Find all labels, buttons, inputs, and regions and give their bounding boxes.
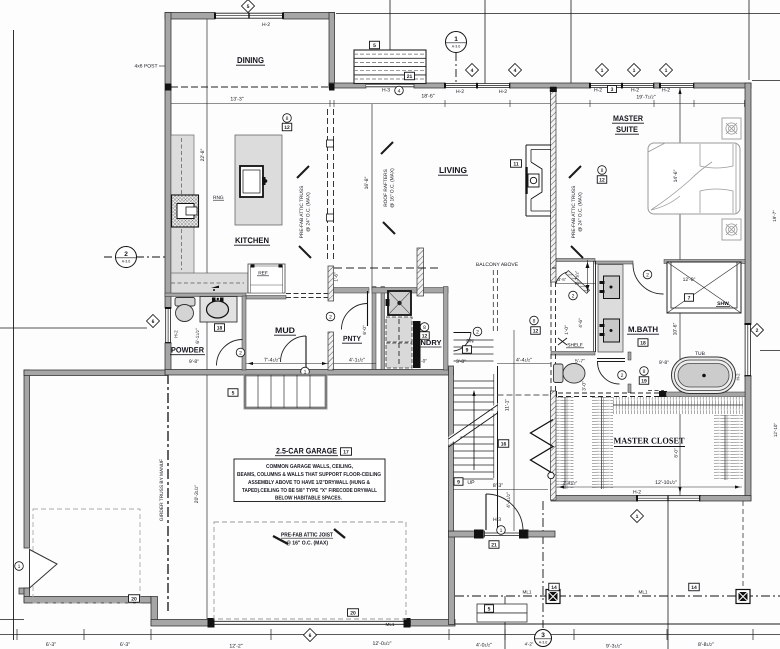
svg-text:22'-8": 22'-8" [200, 148, 206, 161]
svg-text:ML1: ML1 [386, 622, 395, 627]
svg-text:H-2: H-2 [174, 330, 179, 338]
svg-text:8: 8 [533, 318, 536, 324]
svg-text:H-3: H-3 [493, 517, 501, 523]
svg-text:4: 4 [514, 68, 517, 74]
svg-text:BELOW HABITABLE SPACES.: BELOW HABITABLE SPACES. [275, 496, 342, 502]
svg-text:8'-3": 8'-3" [493, 483, 503, 489]
svg-text:17: 17 [343, 449, 349, 455]
svg-text:4x6 POST: 4x6 POST [134, 64, 157, 70]
svg-text:20: 20 [131, 596, 137, 602]
svg-text:2: 2 [572, 293, 575, 299]
svg-text:6: 6 [152, 319, 155, 325]
svg-text:LIVING: LIVING [439, 165, 467, 175]
svg-text:4'-6": 4'-6" [578, 318, 584, 328]
svg-text:1: 1 [500, 528, 503, 534]
svg-text:8: 8 [643, 369, 646, 375]
svg-text:3: 3 [541, 632, 545, 639]
svg-text:2'-41/2": 2'-41/2" [563, 481, 578, 486]
svg-text:9: 9 [457, 479, 460, 485]
svg-text:2: 2 [646, 272, 649, 278]
svg-text:2: 2 [329, 314, 332, 320]
svg-text:2: 2 [239, 350, 242, 356]
svg-text:9'-8": 9'-8" [189, 359, 199, 365]
svg-text:4'-11/2": 4'-11/2" [349, 358, 365, 364]
svg-text:5: 5 [488, 606, 491, 612]
svg-text:A-3.0: A-3.0 [539, 641, 548, 645]
svg-text:8'-81/2": 8'-81/2" [698, 642, 714, 648]
svg-text:ML1: ML1 [639, 590, 648, 595]
svg-text:@ 24" O.C. (MAX): @ 24" O.C. (MAX) [306, 192, 312, 232]
svg-text:8: 8 [286, 116, 289, 122]
svg-text:20: 20 [350, 610, 356, 616]
svg-text:1'-0": 1'-0" [564, 325, 570, 335]
svg-text:5: 5 [373, 43, 376, 49]
svg-text:12: 12 [599, 177, 605, 183]
svg-text:ASSEMBLY ABOVE TO HAVE 1/2"DRY: ASSEMBLY ABOVE TO HAVE 1/2"DRYWALL (HUNG… [248, 479, 370, 486]
svg-text:H-3: H-3 [382, 88, 390, 94]
svg-text:19: 19 [641, 378, 647, 384]
svg-text:PRE-FAB ATTIC TRUSS: PRE-FAB ATTIC TRUSS [299, 186, 305, 239]
svg-text:H-2: H-2 [631, 88, 639, 94]
svg-text:5: 5 [247, 4, 250, 10]
svg-text:GIRDER TRUSS BY MANUF: GIRDER TRUSS BY MANUF [159, 459, 165, 521]
svg-text:1: 1 [454, 36, 458, 43]
svg-text:8'-0": 8'-0" [674, 448, 679, 458]
svg-text:KITCHEN: KITCHEN [235, 236, 269, 245]
svg-text:9'-31/2": 9'-31/2" [606, 644, 622, 649]
svg-text:3'-0": 3'-0" [582, 381, 588, 391]
svg-text:11'-1": 11'-1" [505, 399, 511, 412]
svg-text:2: 2 [124, 251, 128, 258]
svg-text:18'-6": 18'-6" [421, 94, 434, 100]
svg-text:14'-6": 14'-6" [673, 169, 679, 182]
svg-text:10'-6": 10'-6" [673, 322, 679, 335]
svg-text:12'-10": 12'-10" [773, 423, 778, 438]
svg-text:12: 12 [284, 125, 290, 131]
svg-text:20'-31/2": 20'-31/2" [194, 485, 200, 504]
svg-text:H-2: H-2 [633, 490, 641, 496]
svg-text:7'-41/2": 7'-41/2" [264, 358, 280, 364]
svg-text:4'-41/2": 4'-41/2" [516, 358, 532, 364]
svg-text:19'-71/2": 19'-71/2" [636, 95, 655, 101]
svg-text:8: 8 [601, 168, 604, 174]
svg-text:4: 4 [398, 88, 401, 94]
svg-text:11: 11 [513, 161, 519, 167]
svg-text:H-2: H-2 [736, 373, 741, 381]
svg-text:1: 1 [633, 68, 636, 74]
svg-text:12'-2": 12'-2" [229, 644, 242, 649]
svg-text:16'-8": 16'-8" [364, 176, 370, 189]
svg-text:PRE-FAB ATTIC JOIST: PRE-FAB ATTIC JOIST [281, 532, 333, 539]
svg-text:2: 2 [621, 373, 624, 379]
svg-text:DN: DN [466, 339, 474, 345]
svg-text:6'-3": 6'-3" [120, 642, 130, 648]
svg-text:H-2: H-2 [499, 89, 507, 95]
svg-text:MASTER CLOSET: MASTER CLOSET [614, 436, 685, 446]
svg-text:16: 16 [501, 441, 507, 447]
svg-text:COMMON GARAGE WALLS, CEILING,: COMMON GARAGE WALLS, CEILING, [266, 464, 353, 470]
svg-text:MUD: MUD [275, 326, 295, 335]
svg-text:19'-7": 19'-7" [772, 210, 777, 222]
svg-text:3'-8": 3'-8" [456, 359, 466, 365]
svg-text:2: 2 [476, 329, 479, 335]
svg-text:21: 21 [407, 74, 413, 80]
svg-text:-0": -0" [421, 359, 427, 365]
svg-text:TAPED).CEILING TO BE 5/8" TYPE: TAPED).CEILING TO BE 5/8" TYPE "X" FIREC… [242, 487, 377, 494]
svg-text:7: 7 [688, 295, 691, 301]
svg-text:9'-8": 9'-8" [659, 360, 669, 366]
svg-text:PRE-FAB ATTIC TRUSS: PRE-FAB ATTIC TRUSS [571, 186, 577, 239]
svg-text:6'-0": 6'-0" [362, 325, 367, 335]
svg-text:2'-71/2": 2'-71/2" [575, 270, 580, 285]
svg-text:14: 14 [551, 585, 557, 591]
svg-text:1: 1 [601, 68, 604, 74]
svg-text:4: 4 [471, 68, 474, 74]
svg-text:14: 14 [691, 585, 697, 591]
svg-text:BEAMS, COLUMNS & WALLS THAT SU: BEAMS, COLUMNS & WALLS THAT SUPPORT FLOO… [237, 472, 381, 478]
svg-text:2: 2 [756, 328, 759, 334]
svg-text:9: 9 [466, 347, 469, 353]
svg-text:@ 24" O.C. (MAX): @ 24" O.C. (MAX) [578, 192, 584, 232]
svg-text:1'-6": 1'-6" [334, 272, 339, 282]
svg-text:TUB: TUB [695, 351, 706, 357]
svg-text:PNTY: PNTY [343, 334, 361, 343]
svg-text:6'-3": 6'-3" [46, 642, 56, 648]
svg-text:A-3.0: A-3.0 [122, 260, 131, 264]
svg-text:21: 21 [491, 542, 497, 548]
svg-text:2.5-CAR GARAGE: 2.5-CAR GARAGE [276, 447, 338, 456]
svg-text:5: 5 [232, 390, 235, 396]
svg-text:SUITE: SUITE [616, 125, 639, 134]
svg-text:DINING: DINING [237, 55, 264, 65]
svg-text:4'-2": 4'-2" [525, 642, 534, 647]
svg-text:3'-5": 3'-5" [558, 277, 567, 282]
svg-text:H-2: H-2 [456, 89, 464, 95]
svg-text:18: 18 [217, 325, 223, 331]
svg-text:@ 16" O.C. (MAX): @ 16" O.C. (MAX) [286, 540, 328, 547]
svg-text:NDRY: NDRY [421, 338, 442, 347]
svg-text:ROOF RAFTERS: ROOF RAFTERS [383, 169, 389, 207]
svg-text:6: 6 [309, 633, 312, 639]
svg-text:M.BATH: M.BATH [628, 325, 658, 334]
svg-text:BALCONY ABOVE: BALCONY ABOVE [476, 262, 519, 268]
svg-text:A-3.0: A-3.0 [452, 45, 461, 49]
svg-text:5'-7": 5'-7" [575, 359, 585, 365]
svg-text:3: 3 [611, 87, 614, 93]
svg-text:18: 18 [640, 340, 646, 346]
svg-text:MASTER: MASTER [613, 114, 643, 123]
svg-text:6'-11/2": 6'-11/2" [195, 328, 201, 343]
svg-text:UP: UP [467, 480, 475, 486]
svg-text:POWDER: POWDER [171, 346, 204, 355]
svg-text:@ 16" O.C. (MAX): @ 16" O.C. (MAX) [390, 168, 396, 208]
svg-text:12: 12 [533, 328, 539, 334]
svg-text:H-2: H-2 [262, 22, 270, 28]
svg-text:12'-01/2": 12'-01/2" [373, 641, 392, 647]
svg-text:H-2: H-2 [594, 88, 602, 94]
svg-text:1: 1 [636, 514, 639, 520]
svg-text:ML1: ML1 [523, 590, 532, 595]
svg-text:1: 1 [665, 68, 668, 74]
svg-text:1: 1 [18, 564, 21, 570]
svg-text:4'-01/2": 4'-01/2" [476, 643, 492, 649]
svg-text:8: 8 [423, 325, 426, 331]
svg-text:13'-3": 13'-3" [230, 97, 243, 103]
svg-text:H-2: H-2 [662, 88, 670, 94]
svg-text:12'-0": 12'-0" [683, 277, 696, 283]
